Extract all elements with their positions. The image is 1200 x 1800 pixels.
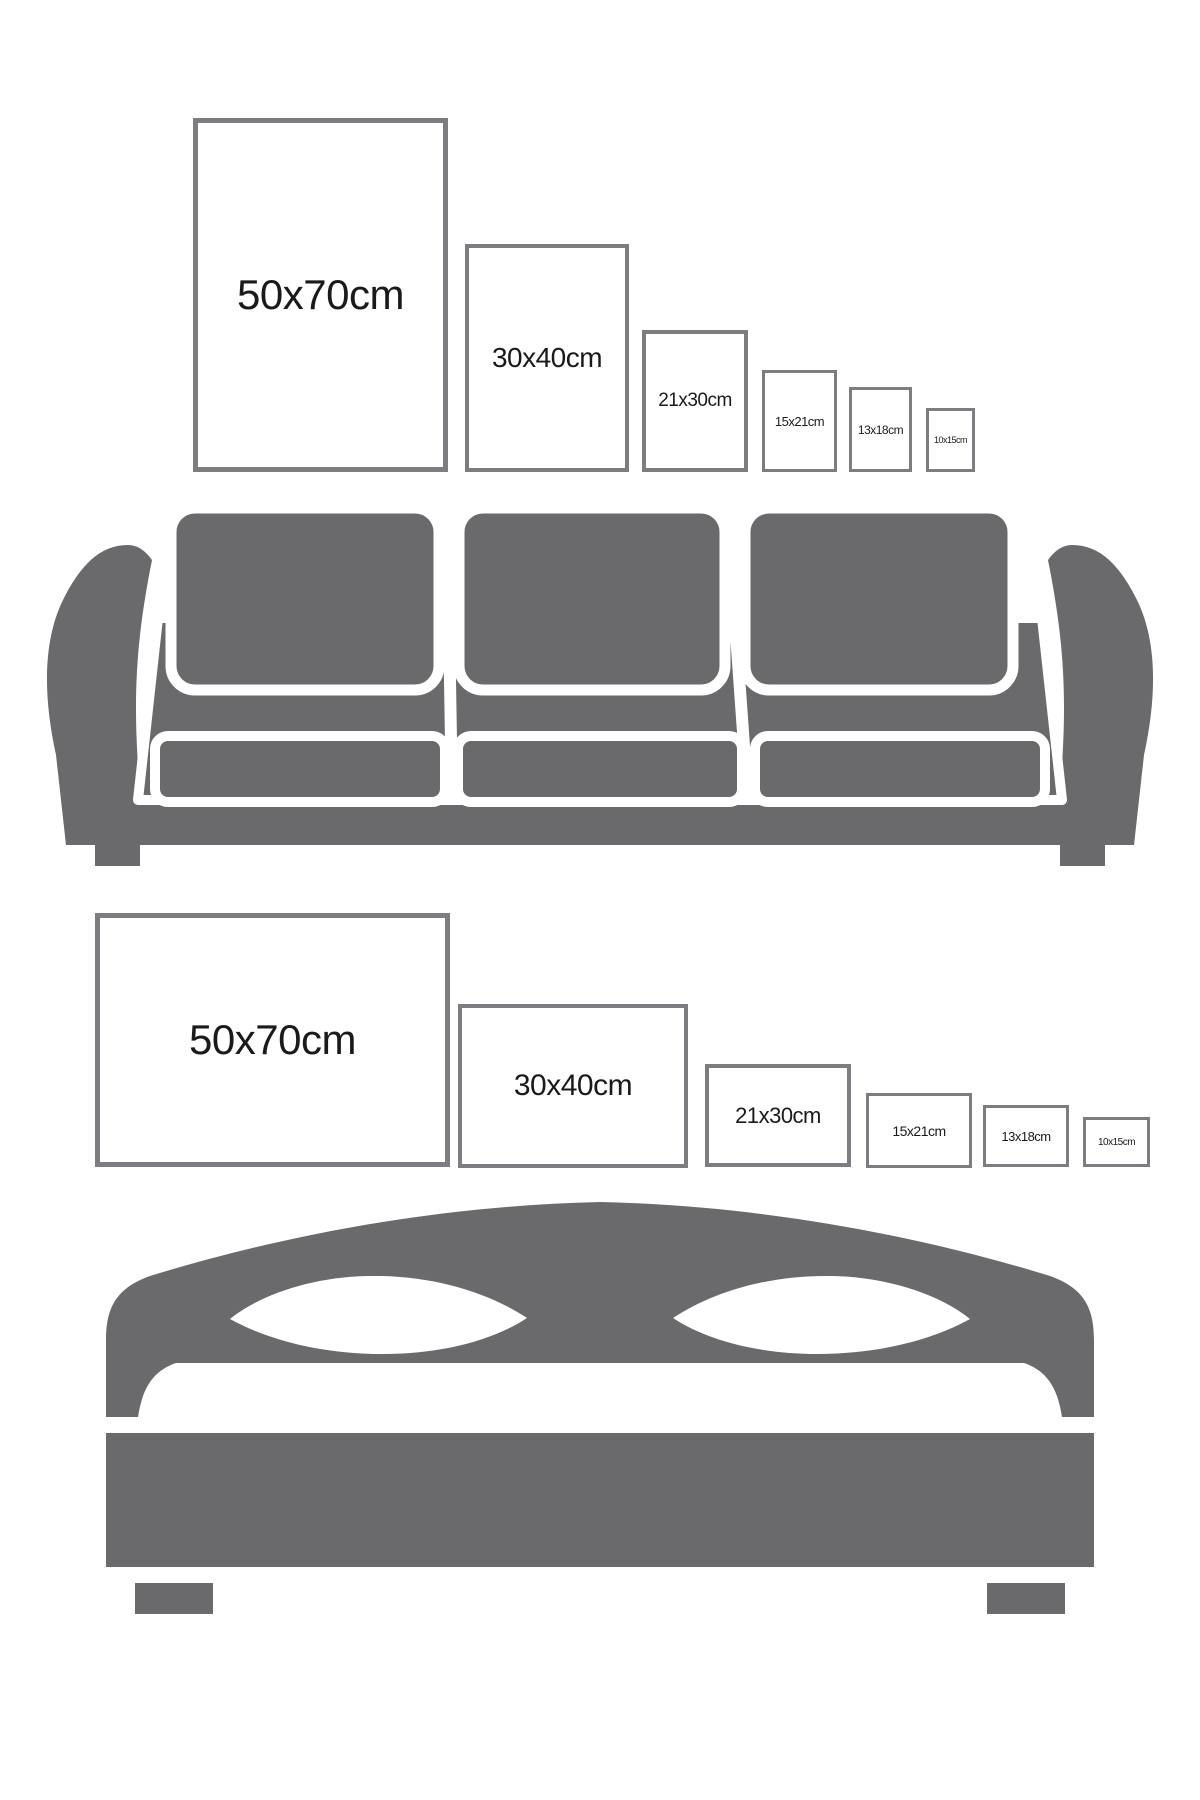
frame-size-label: 15x21cm <box>775 414 824 429</box>
frame-size-label: 30x40cm <box>514 1069 632 1103</box>
poster-frame-landscape-13x18: 13x18cm <box>983 1105 1069 1167</box>
frame-size-label: 10x15cm <box>934 435 967 445</box>
poster-frame-portrait-13x18: 13x18cm <box>849 387 912 472</box>
sofa-base <box>78 805 1122 845</box>
frame-size-label: 13x18cm <box>858 423 903 437</box>
poster-frame-portrait-10x15: 10x15cm <box>926 408 975 472</box>
frame-size-label: 13x18cm <box>1001 1129 1050 1144</box>
frame-size-label: 21x30cm <box>658 390 732 412</box>
poster-size-guide: 50x70cm 30x40cm 21x30cm 15x21cm 13x18cm … <box>0 0 1200 1800</box>
sofa-right-leg <box>1060 845 1105 866</box>
sofa-seat-cushion-3 <box>755 736 1045 802</box>
sofa-left-leg <box>95 845 140 866</box>
sofa-back-cushion-2 <box>459 508 725 690</box>
sofa-back-cushion-3 <box>745 508 1013 690</box>
frame-size-label: 30x40cm <box>492 342 602 374</box>
poster-frame-landscape-21x30: 21x30cm <box>705 1064 851 1167</box>
frame-size-label: 21x30cm <box>735 1103 821 1129</box>
poster-frame-landscape-30x40: 30x40cm <box>458 1004 688 1168</box>
sofa-illustration <box>47 508 1153 866</box>
poster-frame-portrait-21x30: 21x30cm <box>642 330 748 472</box>
bed-left-leg <box>135 1583 213 1614</box>
frame-size-label: 15x21cm <box>892 1123 945 1139</box>
frame-size-label: 10x15cm <box>1098 1137 1135 1148</box>
poster-frame-portrait-30x40: 30x40cm <box>465 244 629 472</box>
frame-size-label: 50x70cm <box>237 271 404 319</box>
sofa-seat-cushion-2 <box>458 736 742 802</box>
sofa-seat-cushion-1 <box>155 736 445 802</box>
bed-mattress <box>106 1433 1094 1567</box>
bed-right-leg <box>987 1583 1065 1614</box>
sofa-back-cushion-1 <box>171 508 439 690</box>
poster-frame-landscape-10x15: 10x15cm <box>1083 1117 1150 1167</box>
poster-frame-portrait-15x21: 15x21cm <box>762 370 837 472</box>
poster-frame-portrait-50x70: 50x70cm <box>193 118 448 472</box>
poster-frame-landscape-15x21: 15x21cm <box>866 1093 972 1168</box>
poster-frame-landscape-50x70: 50x70cm <box>95 913 450 1167</box>
bed-illustration <box>106 1202 1094 1614</box>
frame-size-label: 50x70cm <box>189 1016 356 1064</box>
